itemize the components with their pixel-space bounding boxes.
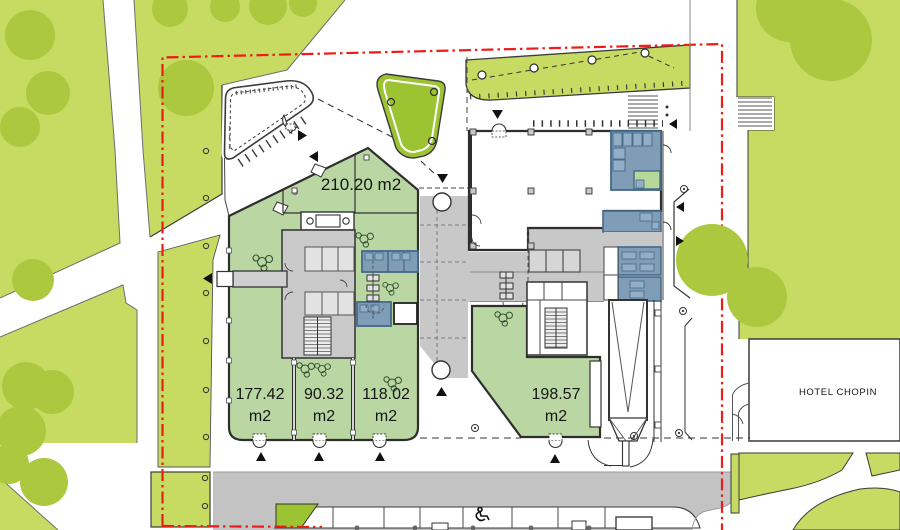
svg-text:m2: m2 <box>313 408 335 425</box>
svg-text:90.32: 90.32 <box>304 386 344 403</box>
svg-text:m2: m2 <box>545 408 567 425</box>
svg-text:m2: m2 <box>249 408 271 425</box>
svg-text:210.20 m2: 210.20 m2 <box>321 175 401 194</box>
svg-text:HOTEL CHOPIN: HOTEL CHOPIN <box>799 387 877 398</box>
svg-text:m2: m2 <box>375 408 397 425</box>
svg-text:118.02: 118.02 <box>362 386 410 403</box>
svg-text:177.42: 177.42 <box>236 386 285 403</box>
svg-text:198.57: 198.57 <box>532 386 581 403</box>
